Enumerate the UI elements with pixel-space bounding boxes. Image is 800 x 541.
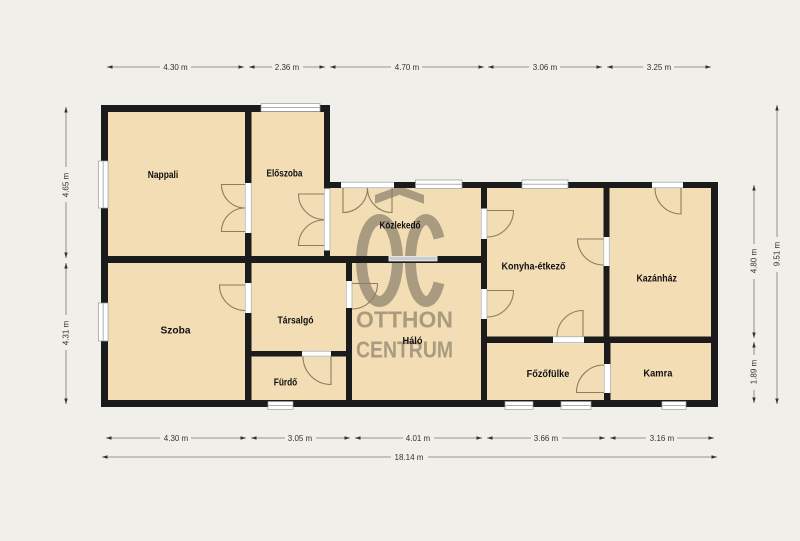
svg-text:3.66 m: 3.66 m: [534, 434, 559, 443]
svg-text:Konyha-étkező: Konyha-étkező: [502, 262, 566, 273]
svg-text:9.51 m: 9.51 m: [773, 241, 782, 266]
svg-text:Szoba: Szoba: [161, 326, 191, 337]
svg-text:4.31 m: 4.31 m: [62, 320, 71, 345]
svg-text:18.14 m: 18.14 m: [395, 453, 424, 462]
svg-text:3.06 m: 3.06 m: [533, 63, 558, 72]
svg-text:OTTHON: OTTHON: [356, 307, 453, 333]
svg-text:Fürdő: Fürdő: [274, 378, 298, 389]
svg-text:4.01 m: 4.01 m: [406, 434, 431, 443]
svg-text:4.30 m: 4.30 m: [164, 434, 189, 443]
svg-text:4.70 m: 4.70 m: [395, 63, 420, 72]
svg-text:4.30 m: 4.30 m: [163, 63, 188, 72]
svg-text:4.65 m: 4.65 m: [62, 172, 71, 197]
svg-text:Nappali: Nappali: [148, 170, 179, 181]
svg-text:4.80 m: 4.80 m: [750, 248, 759, 273]
svg-text:Közlekedő: Közlekedő: [380, 221, 421, 232]
svg-text:Előszoba: Előszoba: [267, 169, 303, 180]
svg-text:2.36 m: 2.36 m: [275, 63, 300, 72]
svg-text:Kamra: Kamra: [643, 369, 672, 380]
svg-text:3.16 m: 3.16 m: [650, 434, 675, 443]
svg-text:Kazánház: Kazánház: [636, 274, 677, 285]
svg-text:3.25 m: 3.25 m: [647, 63, 672, 72]
svg-text:Főzőfülke: Főzőfülke: [527, 369, 570, 380]
svg-text:1.89 m: 1.89 m: [750, 359, 759, 384]
svg-text:3.05 m: 3.05 m: [288, 434, 313, 443]
svg-text:Társalgó: Társalgó: [278, 316, 314, 327]
svg-text:Háló: Háló: [403, 336, 423, 347]
